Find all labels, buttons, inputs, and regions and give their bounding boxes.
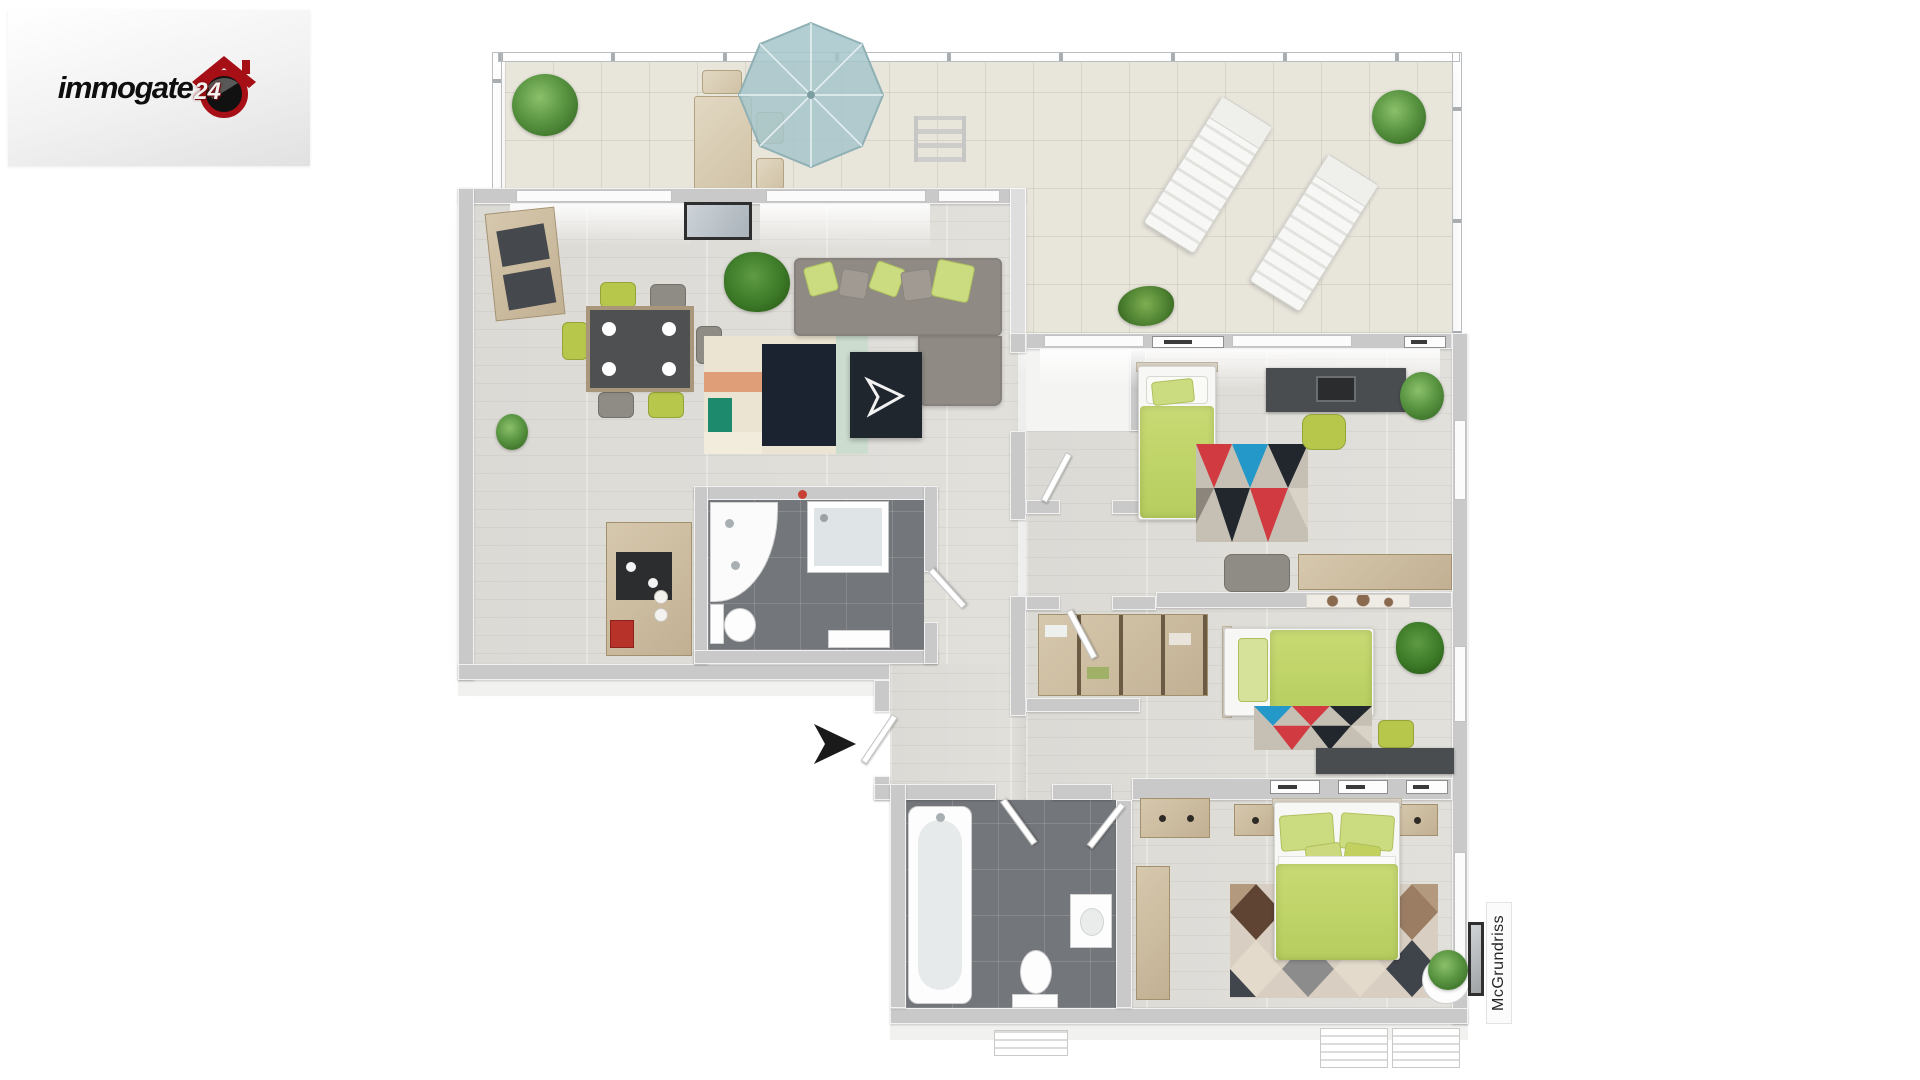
master-plant (1428, 950, 1468, 990)
window-bedroom1-top (1232, 335, 1352, 347)
bath-top-red-flower (798, 490, 807, 499)
vent-master-a (1270, 780, 1320, 794)
bathtub-faucet (936, 813, 945, 822)
wall-living-bottom (458, 664, 890, 680)
curtain-living-2 (760, 204, 930, 250)
bedroom2-desk-chair (1378, 720, 1414, 748)
master-wardrobe (1140, 798, 1210, 838)
wall-wing-left-a (1010, 333, 1026, 353)
wardrobe-clothes (1087, 667, 1109, 679)
kitchen-jar-2 (654, 608, 668, 622)
kitchen-jar-1 (654, 590, 668, 604)
window-bedroom1-right (1454, 420, 1466, 500)
bedroom1-laptop (1316, 376, 1356, 402)
sofa-chaise (918, 336, 1002, 406)
wall-bath1-top (694, 486, 938, 500)
living-rug (704, 336, 868, 454)
hallway-floor (890, 664, 1026, 800)
sofa-pillow-4 (900, 268, 934, 302)
wardrobe-clothes (1045, 625, 1067, 637)
plate (662, 362, 676, 376)
burner (626, 562, 636, 572)
faucet (731, 561, 740, 570)
wall-spur-top (1026, 698, 1140, 712)
plate (602, 362, 616, 376)
window-bedroom2-right (1454, 646, 1466, 722)
wardrobe-clothes (1169, 633, 1191, 645)
shower-drain (820, 514, 828, 522)
window-living-1 (516, 190, 672, 202)
plate (602, 322, 616, 336)
coffee-table (850, 352, 922, 438)
wardrobe-knob (1159, 815, 1166, 822)
wall-bath1-bottom (694, 650, 938, 664)
terrace-railing-left (492, 52, 502, 196)
window-niche (1044, 335, 1144, 347)
master-dresser (1136, 866, 1170, 1000)
dining-chair-2 (650, 284, 686, 310)
toilet-top-bowl (724, 608, 756, 642)
mirror-frame (1468, 922, 1484, 996)
plate (662, 322, 676, 336)
toilet-bottom-bowl (1020, 950, 1052, 994)
wall-vestibule-bottom-b (1112, 596, 1156, 610)
bedroom1-armchair (1224, 554, 1290, 592)
wall-terrace-step (1010, 188, 1026, 338)
wall-wing-left-b (1010, 431, 1026, 520)
bathtub (908, 806, 972, 1004)
dining-chair-1 (600, 282, 636, 308)
bedroom1-plant (1400, 372, 1444, 420)
wall-wing-left-c (1010, 596, 1026, 716)
wall-bath1-right-a (924, 486, 938, 572)
cabinet-door-1 (496, 223, 550, 267)
nightstand-right (1396, 804, 1438, 836)
bed2-duvet (1270, 630, 1372, 716)
faucet (725, 519, 734, 528)
living-small-plant (496, 414, 528, 450)
basin (1080, 908, 1104, 936)
watermark: McGrundriss (1486, 902, 1512, 1024)
burner (648, 578, 658, 588)
wall-vestibule-top-a (1026, 500, 1060, 514)
kitchen-red-appliance (610, 620, 634, 648)
dining-table (590, 310, 690, 388)
bedroom2-plant (1396, 622, 1444, 674)
bedroom2-wall-map (1306, 594, 1410, 608)
bed1-pillow-lime (1151, 378, 1195, 406)
terrace-potted-plant (512, 74, 578, 136)
deck-ladder (914, 116, 966, 162)
vent-master-b (1338, 780, 1388, 794)
logo-box: immogate 24 (8, 10, 310, 166)
wall-bath2-left (890, 784, 906, 1008)
bedroom2-wardrobe (1038, 614, 1208, 696)
wardrobe-knob (1187, 815, 1194, 822)
cabinet-door-2 (503, 267, 557, 311)
nightstand-knob (1252, 817, 1259, 824)
bathtub-basin (918, 820, 962, 990)
entrance-arrow (814, 722, 856, 766)
vent-master-c (1406, 780, 1448, 794)
logo-house-icon: 24 (188, 54, 260, 122)
bedroom1-desk-chair (1302, 414, 1346, 450)
wall-bath1-right-b (924, 622, 938, 664)
exterior-shutter-1 (1320, 1028, 1388, 1068)
master-duvet (1276, 864, 1398, 960)
terrace-bush (1372, 90, 1426, 144)
nightstand-left (1234, 804, 1276, 836)
toilet-bottom-tank (1012, 994, 1058, 1008)
dining-chair-6 (648, 392, 684, 418)
vent-bedroom1-b (1404, 336, 1446, 348)
living-palm-plant (724, 252, 790, 312)
washbasin-bottom (1070, 894, 1112, 948)
exterior-shutter-2 (1392, 1028, 1460, 1068)
window-living-2 (766, 190, 926, 202)
floor-plan: McGrundriss immogate 24 (0, 0, 1920, 1080)
shower-cabin (808, 502, 888, 572)
bedroom2-desk (1316, 748, 1454, 774)
coffee-table-decor (850, 352, 922, 438)
logo-wordmark: immogate (58, 70, 192, 106)
watermark-text: McGrundriss (1490, 915, 1508, 1011)
sofa-pillow-2 (838, 268, 870, 300)
terrace-railing-top (498, 52, 1460, 62)
terrace-railing-right (1452, 52, 1462, 336)
bed2-pillow (1238, 638, 1268, 702)
wall-bath2-top (1052, 784, 1112, 800)
dining-chair-3 (562, 322, 588, 360)
wall-vestibule-bottom-a (1026, 596, 1060, 610)
exterior-shelf (994, 1030, 1068, 1056)
dining-chair-5 (598, 392, 634, 418)
logo-number: 24 (194, 78, 221, 106)
wall-bath2-right (1116, 800, 1132, 1008)
parasol (736, 20, 886, 170)
wall-living-left (458, 188, 474, 680)
nightstand-knob (1414, 817, 1421, 824)
bedroom1-sideboard (1298, 554, 1452, 590)
wall-south (890, 1008, 1468, 1024)
wall-picture (684, 202, 752, 240)
bath-top-cabinet (828, 630, 890, 648)
sofa-pillow-5 (930, 258, 975, 303)
bedroom1-rug (1196, 444, 1308, 542)
bedroom2-rug (1254, 706, 1372, 750)
living-south-fascia (458, 680, 890, 696)
window-living-3 (938, 190, 1000, 202)
wall-bath1-left (694, 486, 708, 664)
vent-bedroom1-a (1152, 336, 1224, 348)
corner-cabinet (485, 207, 566, 322)
wall-hall-left-a (874, 680, 890, 712)
toilet-top-tank (710, 604, 724, 644)
